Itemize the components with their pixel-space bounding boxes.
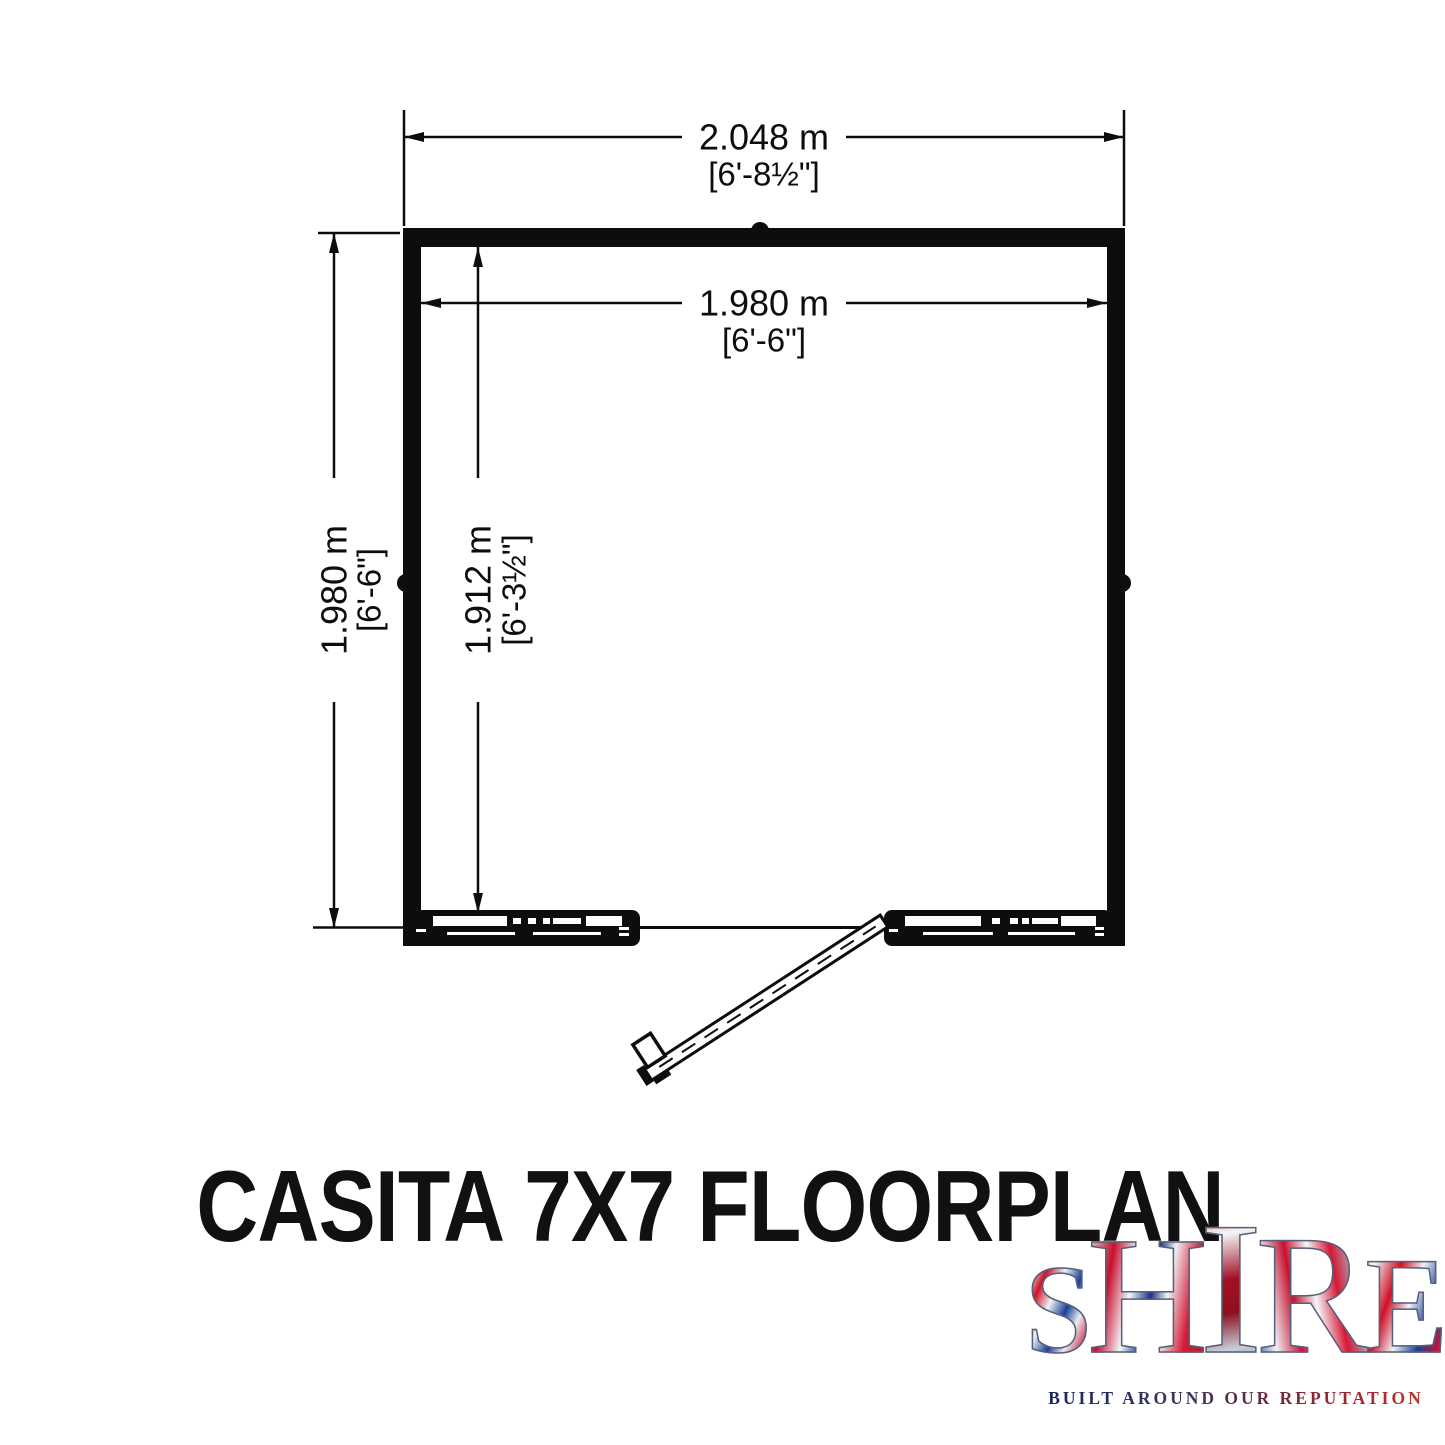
- dim-outer-width-metric: 2.048 m: [699, 117, 829, 158]
- arrowhead: [1087, 298, 1107, 308]
- dim-outer-depth-imperial: [6'-6"]: [351, 548, 388, 632]
- window-right: [884, 910, 1112, 946]
- arrowhead: [1104, 132, 1124, 142]
- arrowhead: [473, 247, 483, 267]
- window-left: [412, 910, 640, 946]
- shire-logo: S H I R E BUILT AROUND OUR REPUTATION: [1040, 1194, 1432, 1409]
- marker-bump-right: [1113, 574, 1131, 592]
- marker-bump-top: [751, 222, 769, 240]
- dim-outer-width-imperial: [6'-8½"]: [708, 156, 820, 193]
- floorplan-page: 2.048 m [6'-8½"] 1.980 m [6'-6"] 1.980 m…: [0, 0, 1445, 1445]
- logo-tagline: BUILT AROUND OUR REPUTATION: [1040, 1388, 1432, 1409]
- logo-letter: S: [1024, 1248, 1094, 1374]
- dim-inner-width-imperial: [6'-6"]: [722, 322, 806, 359]
- dim-inner-depth-imperial: [6'-3½"]: [496, 534, 533, 646]
- dim-outer-depth-metric: 1.980 m: [314, 525, 355, 655]
- arrowhead: [404, 132, 424, 142]
- dim-inner-depth-metric: 1.912 m: [458, 525, 499, 655]
- logo-letter: R: [1256, 1210, 1369, 1380]
- logo-letter: H: [1087, 1212, 1208, 1380]
- logo-letter: I: [1199, 1194, 1262, 1384]
- arrowhead: [329, 233, 339, 253]
- dim-inner-width-metric: 1.980 m: [699, 283, 829, 324]
- arrowhead: [421, 298, 441, 308]
- marker-bump-left: [397, 574, 415, 592]
- door-open: [624, 893, 891, 1089]
- logo-letter: E: [1364, 1237, 1445, 1375]
- arrowhead: [329, 908, 339, 928]
- shire-logo-wordmark: S H I R E: [1040, 1194, 1432, 1384]
